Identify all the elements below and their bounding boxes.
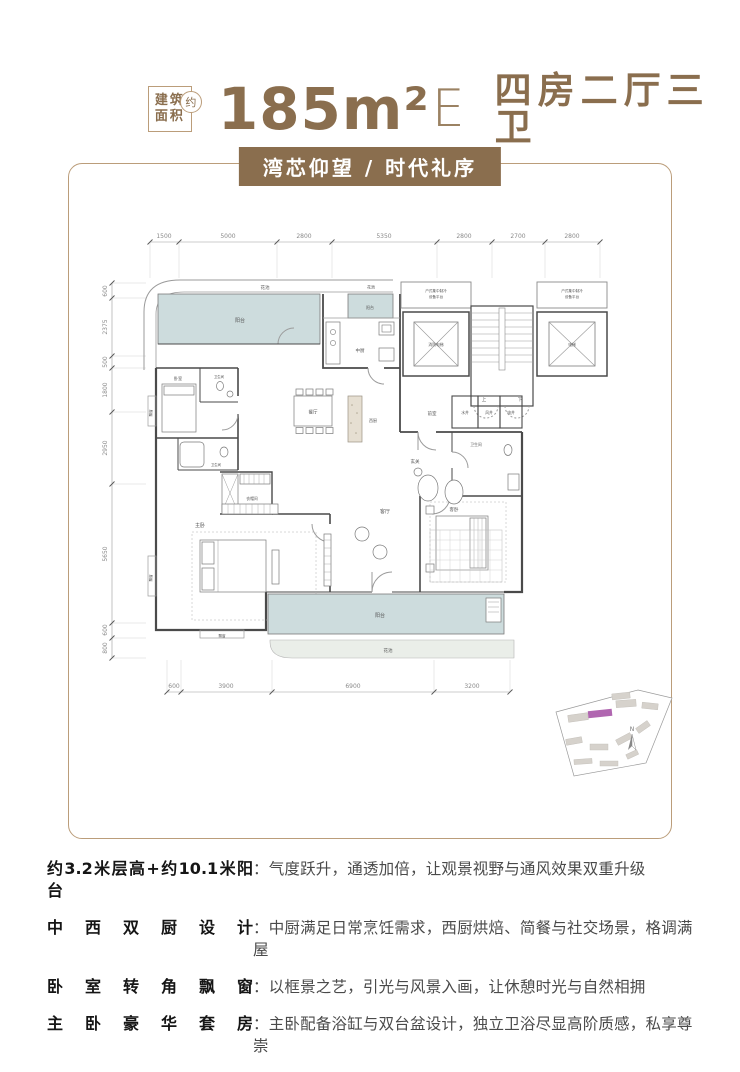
svg-text:飘窗: 飘窗 bbox=[148, 409, 153, 417]
svg-text:3200: 3200 bbox=[464, 683, 479, 690]
foyer-label: 玄关 bbox=[411, 458, 420, 465]
balcony-top-left: 阳台 bbox=[158, 294, 338, 344]
western-kitchen: 西厨 bbox=[348, 396, 377, 442]
area-value: 185m² bbox=[218, 80, 430, 138]
svg-text:2800: 2800 bbox=[296, 233, 311, 240]
svg-text:花池: 花池 bbox=[384, 647, 393, 654]
feature-list: 约3.2米层高+约10.1米阳台 ：气度跃升，通透加倍，让观景视野与通风效果双重… bbox=[47, 858, 697, 1072]
svg-text:6900: 6900 bbox=[345, 683, 360, 690]
svg-text:水井: 水井 bbox=[461, 410, 469, 415]
front-room-label: 前室 bbox=[428, 410, 437, 417]
svg-text:600: 600 bbox=[102, 285, 109, 297]
svg-text:西厨: 西厨 bbox=[369, 417, 377, 423]
svg-text:设备平台: 设备平台 bbox=[565, 294, 580, 299]
svg-text:卫生间: 卫生间 bbox=[211, 462, 222, 467]
bathroom-guest: 卫生间 bbox=[470, 442, 519, 490]
svg-text:飘窗: 飘窗 bbox=[219, 633, 226, 638]
svg-text:5650: 5650 bbox=[102, 546, 109, 561]
svg-text:2800: 2800 bbox=[564, 233, 579, 240]
feature-row: 主卧豪华套房 ：主卧配备浴缸与双台盆设计，独立卫浴尽显高阶质感，私享尊崇 bbox=[47, 1013, 697, 1057]
svg-text:1800: 1800 bbox=[102, 382, 109, 397]
core: 户式集中制冷 设备平台 户式集中制冷 设备平台 消防电梯 上 下 电梯 前室 bbox=[401, 282, 607, 428]
feature-row: 约3.2米层高+约10.1米阳台 ：气度跃升，通透加倍，让观景视野与通风效果双重… bbox=[47, 858, 697, 902]
svg-text:5000: 5000 bbox=[220, 233, 235, 240]
site-plan bbox=[556, 690, 672, 776]
feature-label: 中西双厨设计 bbox=[47, 917, 253, 961]
unit-type-letter: E bbox=[432, 83, 465, 135]
svg-text:衣帽间: 衣帽间 bbox=[246, 496, 258, 501]
svg-text:阳台: 阳台 bbox=[375, 612, 385, 619]
slogan-banner: 湾芯仰望 / 时代礼序 bbox=[239, 147, 501, 186]
feature-desc: ：主卧配备浴缸与双台盆设计，独立卫浴尽显高阶质感，私享尊崇 bbox=[253, 1013, 697, 1057]
svg-text:1500: 1500 bbox=[156, 233, 171, 240]
svg-text:中厨: 中厨 bbox=[356, 347, 365, 354]
feature-desc: ：中厨满足日常烹饪需求，西厨烘焙、简餐与社交场景，格调满屋 bbox=[253, 917, 697, 961]
svg-text:户式集中制冷: 户式集中制冷 bbox=[425, 288, 447, 293]
balcony-top-small: 阳台 bbox=[348, 294, 393, 318]
svg-text:消防电梯: 消防电梯 bbox=[428, 342, 443, 347]
header: 建筑 面积 约 185m² E 四房二厅三卫 bbox=[148, 72, 740, 146]
svg-text:电井: 电井 bbox=[507, 410, 515, 415]
svg-text:500: 500 bbox=[102, 356, 109, 368]
dining: 餐厅 bbox=[294, 389, 333, 434]
svg-text:600: 600 bbox=[168, 683, 180, 690]
floor-plan: 1500 5000 2800 5350 2800 2700 2800 600 2… bbox=[80, 200, 680, 780]
feature-desc: ：以框景之艺，引光与风景入画，让休憩时光与自然相拥 bbox=[253, 976, 697, 998]
flower-bed-label: 花池 bbox=[261, 284, 270, 291]
feature-label: 卧室转角飘窗 bbox=[47, 976, 253, 998]
svg-text:2700: 2700 bbox=[510, 233, 525, 240]
svg-text:飘窗: 飘窗 bbox=[148, 574, 153, 582]
fire-elevator: 消防电梯 bbox=[403, 312, 469, 376]
shafts: 水井 风井 电井 bbox=[452, 396, 522, 428]
svg-text:客厅: 客厅 bbox=[380, 508, 390, 515]
svg-text:户式集中制冷: 户式集中制冷 bbox=[561, 288, 583, 293]
feature-row: 卧室转角飘窗 ：以框景之艺，引光与风景入画，让休憩时光与自然相拥 bbox=[47, 976, 697, 998]
flower-bed-bottom: 花池 bbox=[270, 640, 514, 658]
dimensions-bottom: 600 3900 6900 3200 bbox=[165, 660, 513, 695]
svg-text:卫生间: 卫生间 bbox=[470, 442, 482, 447]
svg-text:上: 上 bbox=[482, 396, 487, 403]
approx-circle: 约 bbox=[180, 91, 202, 113]
badge-line2: 面积 bbox=[155, 109, 185, 125]
svg-text:600: 600 bbox=[102, 624, 109, 636]
svg-text:餐厅: 餐厅 bbox=[309, 409, 318, 416]
stairs: 上 下 bbox=[471, 306, 533, 418]
dimensions-top: 1500 5000 2800 5350 2800 2700 2800 bbox=[148, 233, 603, 278]
feature-label: 主卧豪华套房 bbox=[47, 1013, 253, 1057]
svg-text:N: N bbox=[630, 726, 635, 733]
svg-text:3900: 3900 bbox=[218, 683, 233, 690]
svg-text:阳台: 阳台 bbox=[366, 304, 374, 310]
svg-text:电梯: 电梯 bbox=[568, 342, 576, 347]
svg-text:主卧: 主卧 bbox=[195, 522, 205, 529]
svg-text:2950: 2950 bbox=[102, 440, 109, 455]
bedroom-upper-left: 卧室 卫生间 bbox=[162, 374, 233, 432]
passenger-elevator: 电梯 bbox=[537, 312, 607, 376]
flower-bed-label: 花池 bbox=[367, 284, 375, 290]
layout-title: 四房二厅三卫 bbox=[495, 72, 740, 146]
svg-text:2375: 2375 bbox=[102, 319, 109, 334]
dimensions-left: 600 2375 500 1800 2950 5650 600 800 bbox=[102, 281, 146, 661]
balcony-bottom: 阳台 bbox=[268, 594, 504, 634]
bathroom-mid: 卫生间 bbox=[180, 442, 228, 467]
feature-row: 中西双厨设计 ：中厨满足日常烹饪需求，西厨烘焙、简餐与社交场景，格调满屋 bbox=[47, 917, 697, 961]
feature-desc: ：气度跃升，通透加倍，让观景视野与通风效果双重升级 bbox=[253, 858, 697, 902]
svg-text:设备平台: 设备平台 bbox=[429, 294, 444, 299]
svg-text:2800: 2800 bbox=[456, 233, 471, 240]
svg-text:卫生间: 卫生间 bbox=[214, 374, 225, 379]
svg-text:客卧: 客卧 bbox=[450, 506, 459, 513]
feature-label: 约3.2米层高+约10.1米阳台 bbox=[47, 858, 253, 902]
svg-text:阳台: 阳台 bbox=[235, 317, 245, 324]
svg-text:800: 800 bbox=[102, 642, 109, 654]
area-badge: 建筑 面积 约 bbox=[148, 86, 192, 132]
svg-text:卧室: 卧室 bbox=[174, 375, 182, 382]
svg-text:风井: 风井 bbox=[485, 410, 493, 415]
svg-text:5350: 5350 bbox=[376, 233, 391, 240]
